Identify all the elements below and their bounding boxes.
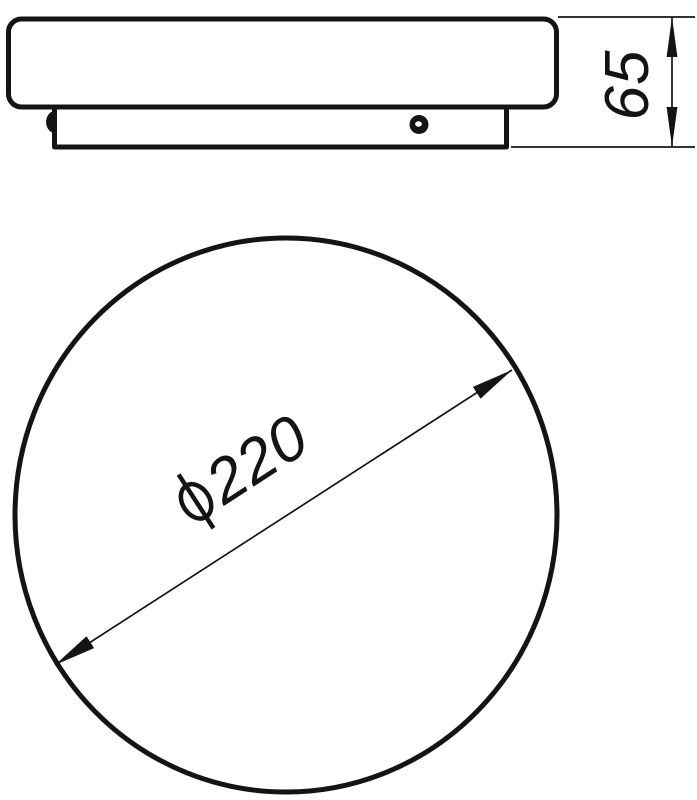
arrow-up-icon	[667, 17, 678, 57]
drawing-page: 65 220	[0, 0, 697, 800]
top-view: 220	[15, 238, 557, 792]
base-clip-bump	[46, 111, 56, 134]
arrow-down-icon	[667, 107, 678, 147]
side-view: 65	[9, 17, 696, 147]
lamp-base-outline	[55, 107, 507, 147]
technical-drawing-canvas: 65 220	[0, 0, 697, 800]
lamp-cover-outline	[9, 19, 557, 107]
height-dimension-label: 65	[593, 50, 662, 121]
screw-head-hole	[415, 121, 422, 126]
